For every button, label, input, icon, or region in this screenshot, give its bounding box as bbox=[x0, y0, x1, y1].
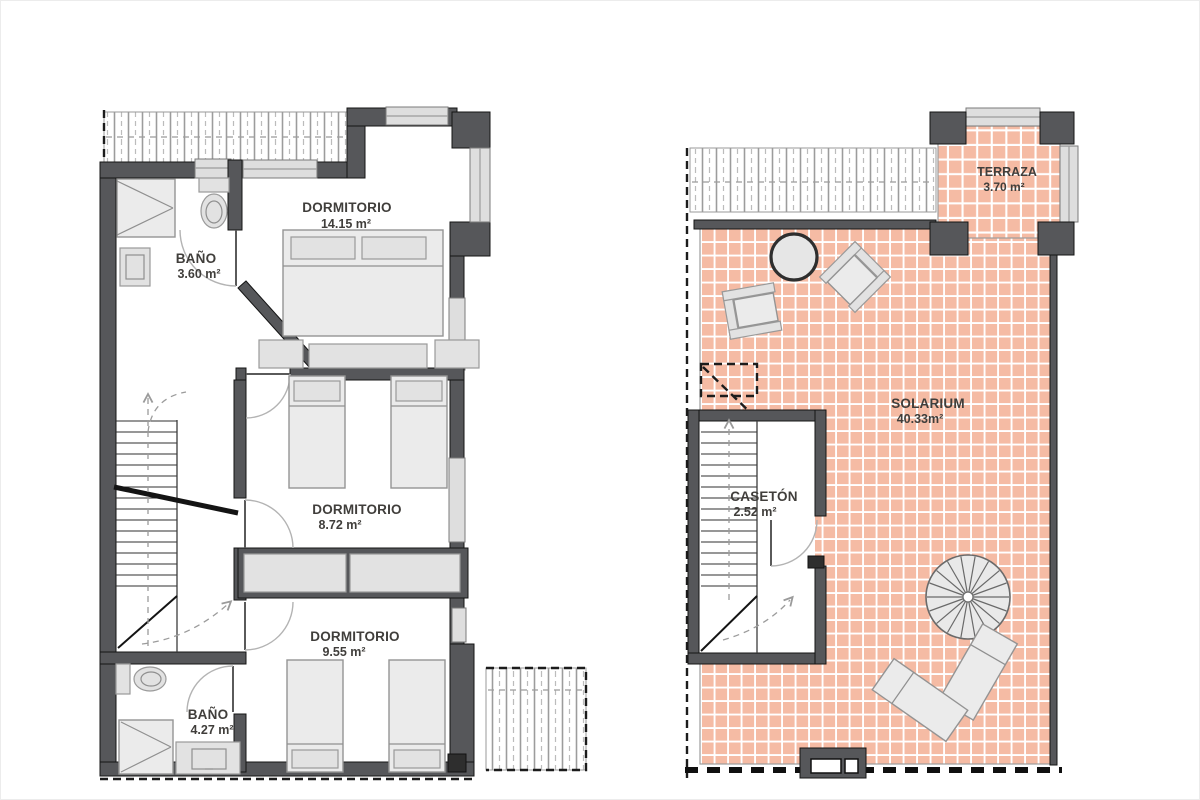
room-label-dormitorio-bottom: DORMITORIO 9.55 m² bbox=[310, 629, 400, 659]
single-bed bbox=[389, 660, 445, 772]
single-bed bbox=[391, 376, 447, 488]
room-area: 8.72 m² bbox=[318, 518, 361, 532]
wardrobe bbox=[350, 554, 460, 592]
roof-hatch-bottom-right bbox=[486, 668, 586, 770]
window bbox=[452, 608, 466, 642]
room-label-bano-bottom: BAÑO 4.27 m² bbox=[188, 707, 234, 737]
pillow bbox=[394, 750, 440, 768]
single-bed bbox=[289, 376, 345, 488]
room-name: SOLARIUM bbox=[891, 396, 965, 411]
round-table bbox=[771, 234, 817, 280]
armchair bbox=[722, 283, 782, 339]
room-name: DORMITORIO bbox=[312, 502, 402, 517]
room-area: 40.33m² bbox=[897, 412, 944, 426]
floorplan-drawing: BAÑO 3.60 m² DORMITORIO 14.15 m² bbox=[0, 0, 1200, 800]
double-bed bbox=[283, 230, 443, 336]
solarium-top-wall bbox=[694, 220, 936, 229]
room-name: BAÑO bbox=[176, 251, 217, 266]
terraza-wall-corner bbox=[1040, 112, 1074, 144]
single-bed bbox=[287, 660, 343, 772]
bench bbox=[309, 344, 427, 368]
pillow bbox=[396, 381, 442, 401]
room-name: BAÑO bbox=[188, 707, 229, 722]
shower bbox=[117, 179, 175, 237]
nightstand bbox=[259, 340, 303, 368]
door-swing bbox=[245, 500, 293, 548]
wardrobes bbox=[238, 548, 468, 598]
bedroom-main: DORMITORIO 14.15 m² bbox=[259, 200, 479, 368]
upper-floor-plan: BAÑO 3.60 m² DORMITORIO 14.15 m² bbox=[100, 107, 586, 779]
room-label-bano-top: BAÑO 3.60 m² bbox=[176, 251, 221, 281]
stair-treads bbox=[116, 421, 177, 586]
spiral-staircase bbox=[926, 555, 1010, 639]
terraza-wall-corner bbox=[1038, 222, 1074, 255]
door-swing bbox=[187, 666, 233, 712]
window bbox=[449, 458, 465, 542]
terraza-wall-corner bbox=[930, 222, 968, 255]
room-area: 2.52 m² bbox=[733, 505, 776, 519]
roof-hatch-strip bbox=[690, 148, 936, 212]
room-area: 4.27 m² bbox=[190, 723, 233, 737]
room-area: 3.60 m² bbox=[177, 267, 220, 281]
room-name: CASETÓN bbox=[730, 489, 797, 504]
terraza: TERRAZA 3.70 m² bbox=[930, 108, 1078, 255]
roof-plan: TERRAZA 3.70 m² bbox=[685, 108, 1078, 778]
toilet bbox=[199, 178, 229, 228]
room-area: 14.15 m² bbox=[321, 217, 371, 231]
room-name: TERRAZA bbox=[977, 165, 1037, 179]
room-name: DORMITORIO bbox=[302, 200, 392, 215]
door-swing bbox=[246, 374, 290, 418]
direction-arc bbox=[142, 604, 228, 644]
staircase bbox=[114, 392, 238, 652]
room-label-dormitorio-middle: DORMITORIO 8.72 m² bbox=[312, 502, 402, 532]
solarium-right-wall bbox=[1050, 255, 1057, 765]
toilet bbox=[116, 664, 166, 694]
pillow bbox=[291, 237, 355, 259]
room-area: 3.70 m² bbox=[983, 180, 1024, 194]
bedroom-bottom: DORMITORIO 9.55 m² bbox=[287, 629, 445, 772]
pillow bbox=[294, 381, 340, 401]
wardrobe bbox=[244, 554, 346, 592]
room-label-dormitorio-main: DORMITORIO 14.15 m² bbox=[302, 200, 392, 231]
bathroom-bottom: BAÑO 4.27 m² bbox=[116, 664, 240, 774]
door-swing bbox=[245, 602, 293, 650]
room-area: 9.55 m² bbox=[322, 645, 365, 659]
washbasin bbox=[120, 248, 150, 286]
bedroom-middle: DORMITORIO 8.72 m² bbox=[289, 376, 447, 532]
vent-box bbox=[800, 748, 866, 778]
door-jamb bbox=[808, 556, 824, 568]
nightstand bbox=[435, 340, 479, 368]
terraza-wall-corner bbox=[930, 112, 966, 144]
pillow bbox=[292, 750, 338, 768]
floorplan-image: BAÑO 3.60 m² DORMITORIO 14.15 m² bbox=[0, 0, 1200, 800]
roof-hatch-top-left bbox=[104, 110, 350, 163]
bathroom-top: BAÑO 3.60 m² bbox=[117, 178, 229, 286]
shower bbox=[119, 720, 173, 774]
room-name: DORMITORIO bbox=[310, 629, 400, 644]
pillow bbox=[362, 237, 426, 259]
washbasin bbox=[176, 742, 240, 774]
